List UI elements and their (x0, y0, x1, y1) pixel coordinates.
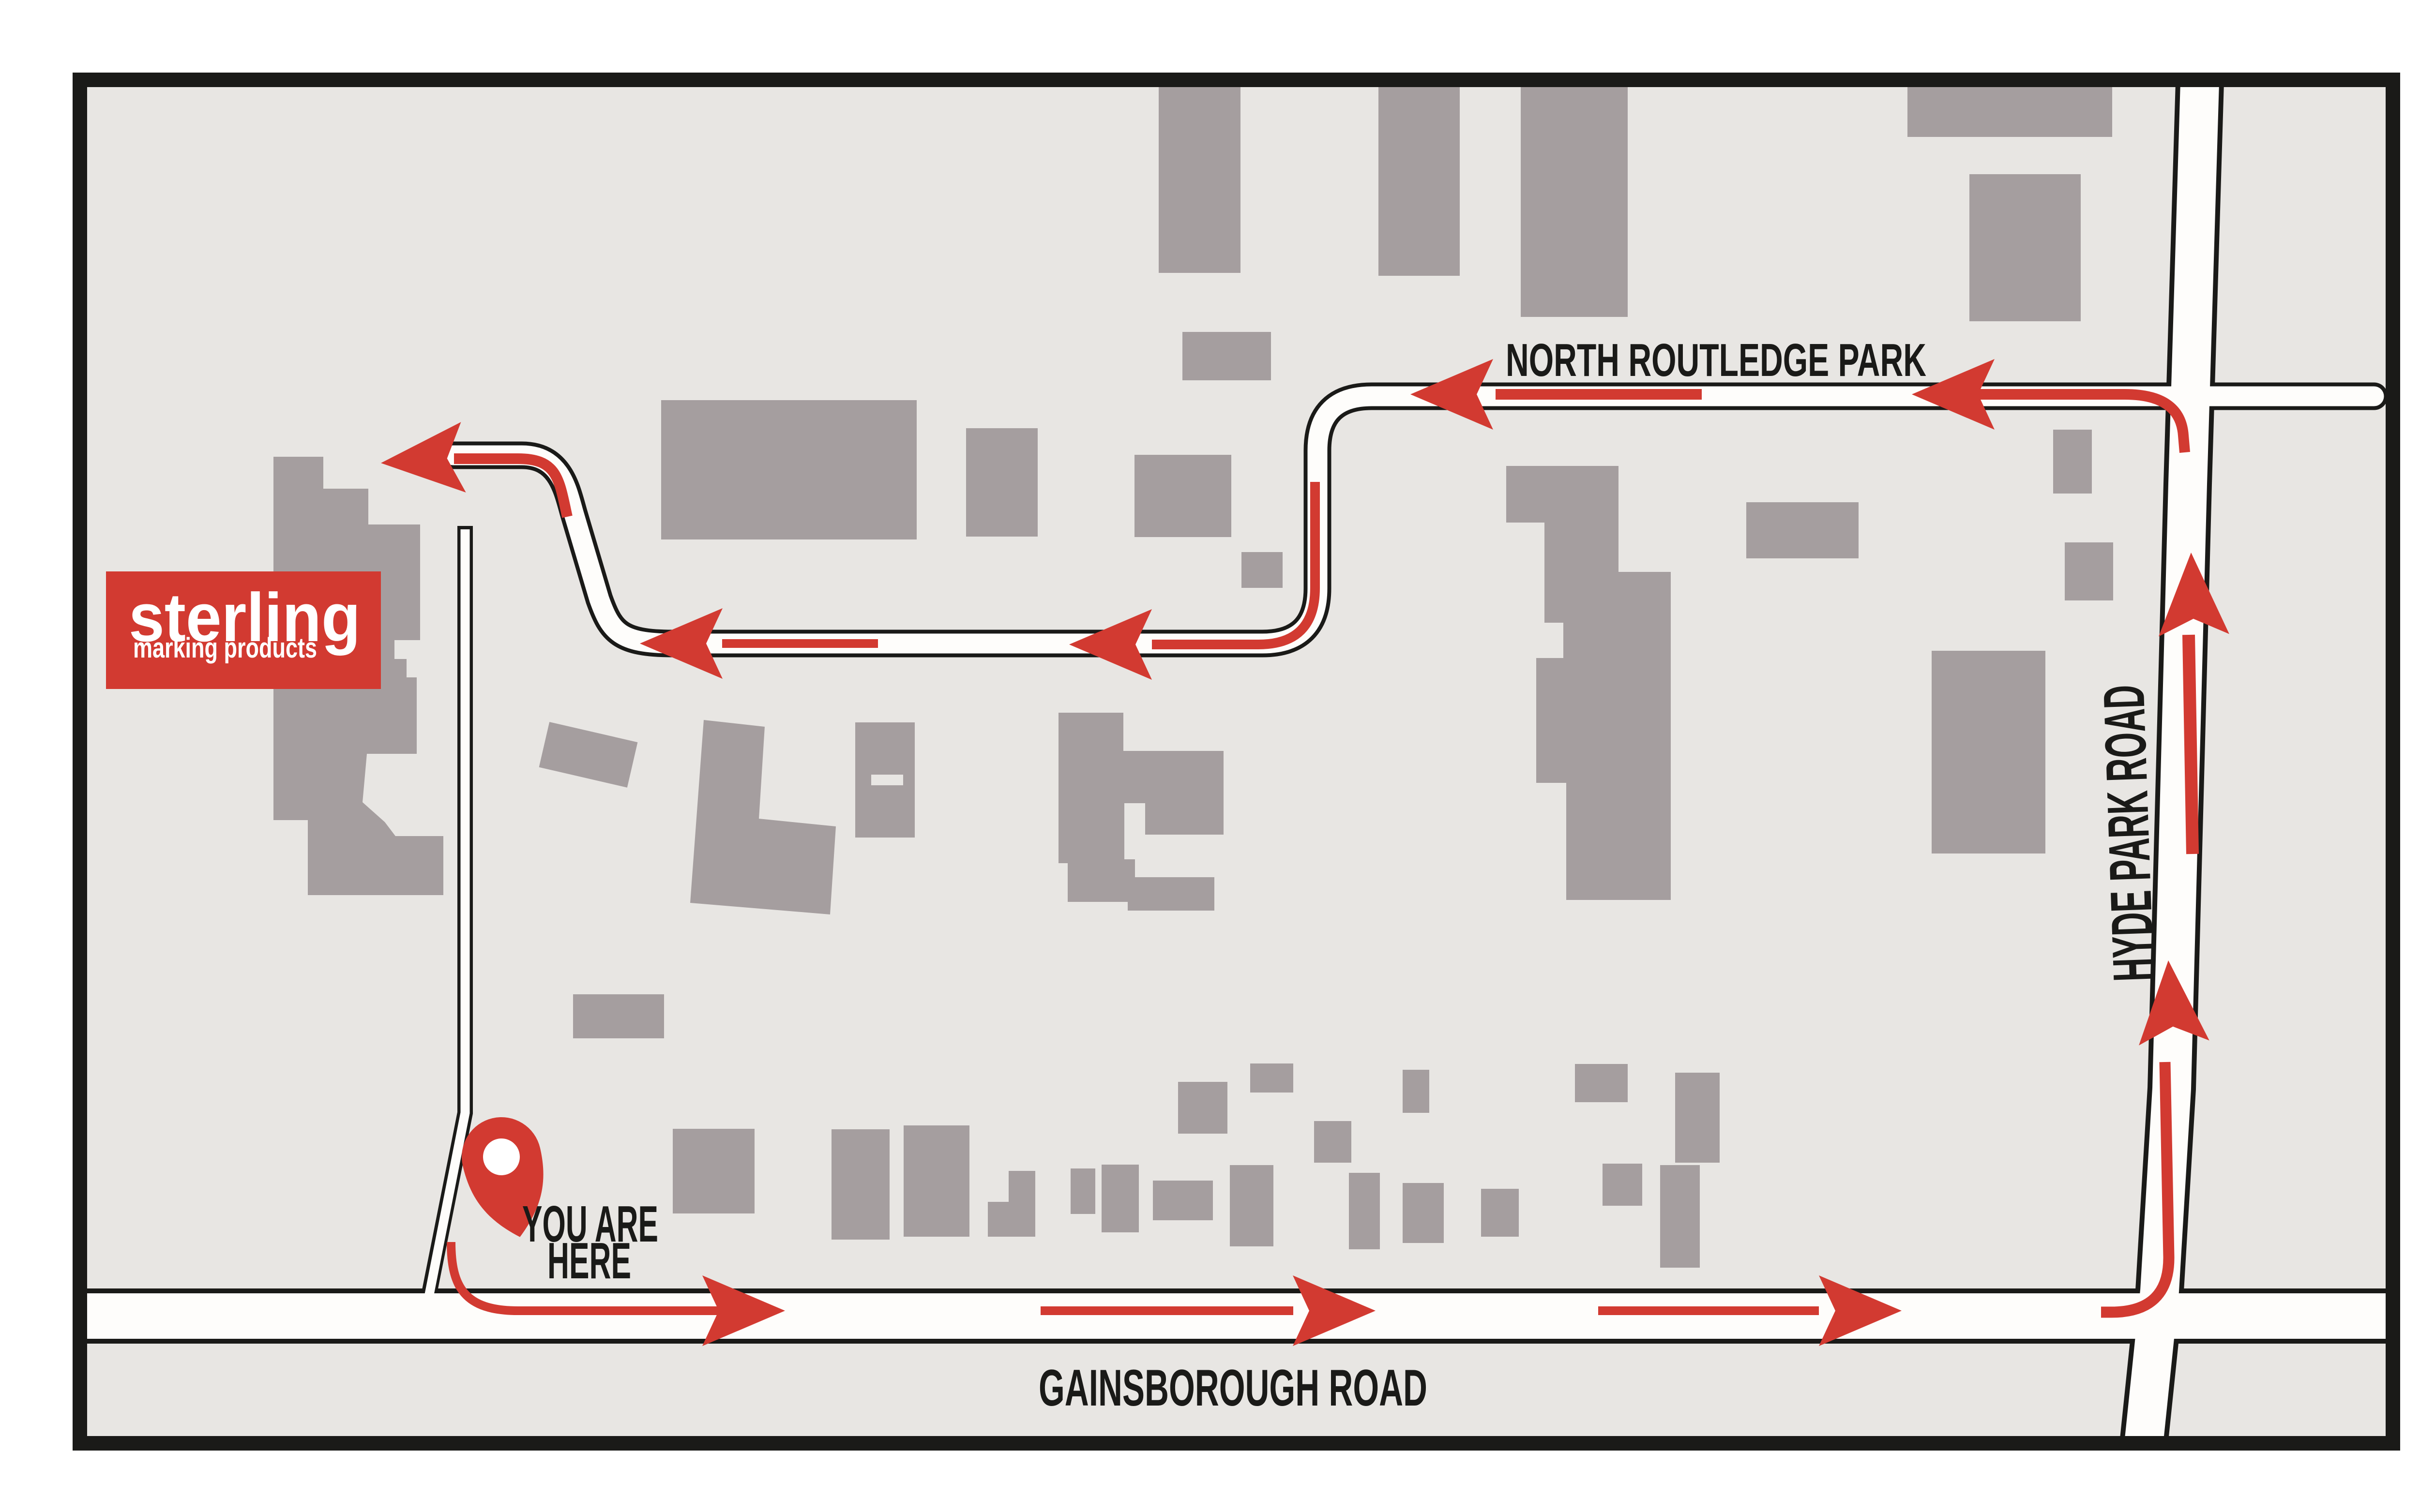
svg-text:marking products: marking products (133, 632, 317, 664)
svg-text:HYDE PARK ROAD: HYDE PARK ROAD (2091, 684, 2166, 982)
svg-text:GAINSBOROUGH ROAD: GAINSBOROUGH ROAD (1039, 1359, 1427, 1417)
svg-text:HERE: HERE (547, 1232, 631, 1289)
svg-text:NORTH ROUTLEDGE PARK: NORTH ROUTLEDGE PARK (1506, 334, 1926, 386)
